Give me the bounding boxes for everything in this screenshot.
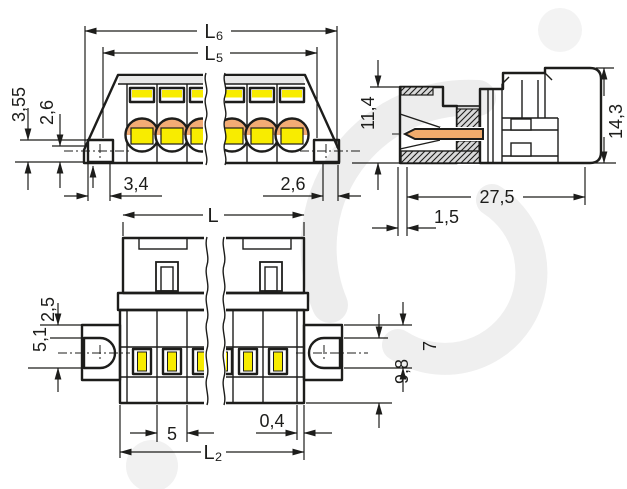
top-dim-left: 2,5 5,1 <box>28 297 86 392</box>
dim-275-label: 27,5 <box>479 187 514 207</box>
dim-355-label: 3,55 <box>9 87 29 122</box>
top-dim-pitch: 5 <box>130 405 214 444</box>
side-hatch-mid-upper <box>457 109 479 128</box>
front-dim-height: 3,55 2,6 <box>9 87 93 190</box>
dim-l-label: L <box>207 205 218 227</box>
side-hatch-bottom <box>401 151 480 163</box>
side-hatch-top <box>401 87 433 95</box>
top-dim-l: L <box>123 205 304 236</box>
contact-slot <box>163 349 181 374</box>
clamp-cavity <box>246 119 279 152</box>
push-button <box>250 88 274 102</box>
clamp-cavity <box>126 119 159 152</box>
side-housing <box>480 68 601 163</box>
dim-7-label: 7 <box>420 341 440 351</box>
dim-51-label: 5,1 <box>30 327 50 352</box>
technical-drawing: L₆ L₅ 3,55 2,6 <box>0 0 627 489</box>
dim-5-label: 5 <box>167 424 177 444</box>
front-flange-left <box>64 140 130 162</box>
top-break <box>204 236 226 406</box>
dim-04-label: 0,4 <box>259 411 284 431</box>
dim-l6-label: L₆ <box>204 21 223 43</box>
push-button <box>130 88 154 102</box>
push-button <box>280 88 304 102</box>
dim-34-label: 3,4 <box>123 174 148 194</box>
dim-l5-label: L₅ <box>204 43 223 65</box>
dim-114-label: 11,4 <box>358 96 378 130</box>
contact-slot <box>133 349 151 374</box>
dim-98-label: 9,8 <box>392 359 412 384</box>
contact-slot <box>239 349 257 374</box>
top-ear-right <box>296 325 368 380</box>
side-housing-details <box>488 73 558 163</box>
clamp-cavity <box>156 119 189 152</box>
front-break <box>203 72 226 165</box>
dim-15-label: 1,5 <box>434 207 459 227</box>
push-button <box>160 88 184 102</box>
side-dim-275: 27,5 <box>398 167 585 236</box>
side-dim-15: 1,5 <box>372 207 459 228</box>
top-view: L 2,5 5,1 7 9,8 <box>28 205 440 464</box>
clamp-cavity <box>276 119 309 152</box>
dim-25-label: 2,5 <box>38 297 58 322</box>
drawing-canvas: L₆ L₅ 3,55 2,6 <box>0 0 627 489</box>
dim-26-left-label: 2,6 <box>37 100 57 125</box>
dim-143-label: 14,3 <box>606 104 626 139</box>
front-view: L₆ L₅ 3,55 2,6 <box>9 21 362 201</box>
contact-slot <box>269 349 287 374</box>
dim-l2-label: L₂ <box>204 442 223 464</box>
dim-26-bottom-label: 2,6 <box>280 174 305 194</box>
